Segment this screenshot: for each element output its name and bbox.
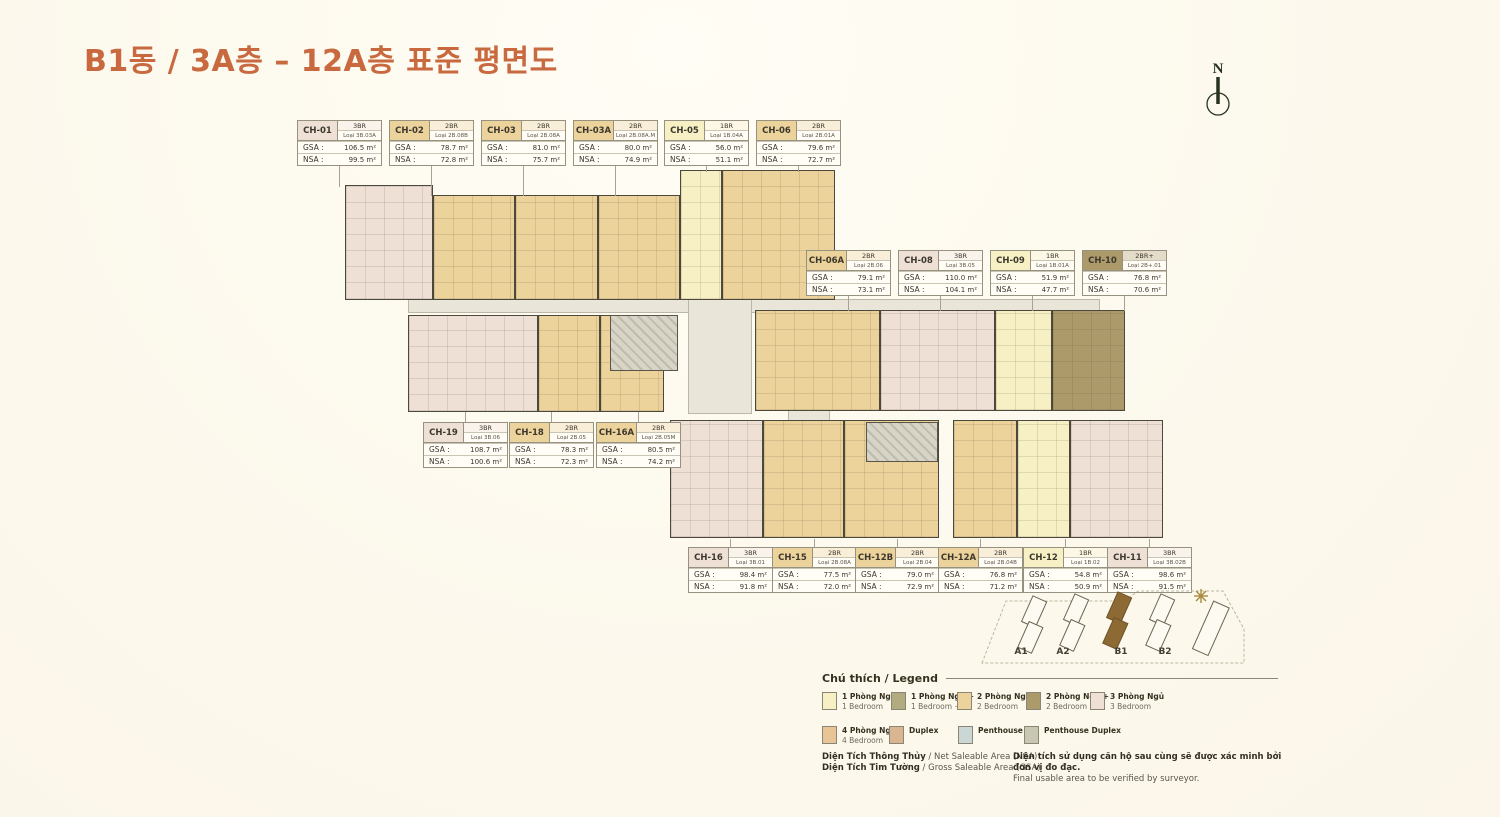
unit-type-code: Loại 2B+.01 — [1123, 261, 1166, 270]
gsa-label: GSA : — [670, 143, 691, 152]
unit-ch-10 — [1052, 310, 1125, 411]
gsa-label: GSA : — [1113, 570, 1134, 579]
nsa-value: 99.5 m² — [349, 156, 376, 164]
unit-header: CH-16 3BR Loại 3B.01 — [689, 548, 772, 568]
legend-label-vi: 2 Phòng Ngủ — [977, 692, 1031, 702]
gsa-label: GSA : — [996, 273, 1017, 282]
leader-line-ch-03 — [523, 164, 524, 196]
nsa-value: 72.3 m² — [561, 458, 588, 466]
nsa-label: NSA : — [670, 155, 691, 164]
unit-nsa-row: NSA : 99.5 m² — [298, 153, 381, 165]
unit-ch-05 — [680, 170, 722, 300]
unit-info-ch-03: CH-03 2BR Loại 2B.08A GSA : 81.0 m² NSA … — [481, 120, 566, 166]
leader-line-ch-16a — [638, 412, 639, 422]
legend-swatch — [889, 726, 904, 744]
building-a2 — [1053, 594, 1095, 651]
unit-gsa-row: GSA : 80.5 m² — [597, 443, 680, 455]
unit-bedrooms: 2BR — [637, 423, 680, 433]
nsa-label: NSA : — [429, 457, 450, 466]
legend-label-vi: Penthouse Duplex — [1044, 726, 1121, 736]
leader-line-ch-09 — [1032, 294, 1033, 311]
unit-id: CH-09 — [991, 251, 1031, 270]
unit-id: CH-11 — [1108, 548, 1148, 567]
unit-header: CH-16A 2BR Loại 2B.05M — [597, 423, 680, 443]
nsa-value: 74.2 m² — [648, 458, 675, 466]
disclaimer-vi: Diện tích sử dụng căn hộ sau cùng sẽ đượ… — [1013, 752, 1281, 773]
unit-bedrooms: 3BR — [464, 423, 507, 433]
unit-ch-03 — [515, 195, 598, 300]
unit-id: CH-12A — [939, 548, 979, 567]
nsa-value: 72.9 m² — [907, 583, 934, 591]
unit-id: CH-18 — [510, 423, 550, 442]
unit-bedrooms: 1BR — [705, 121, 748, 131]
disclaimer-en: Final usable area to be verified by surv… — [1013, 774, 1292, 785]
unit-gsa-row: GSA : 80.0 m² — [574, 141, 657, 153]
legend-heading: Chú thích / Legend — [822, 672, 1278, 685]
unit-type-code: Loại 3B.02B — [1148, 558, 1191, 567]
compass-rose-icon — [1194, 589, 1208, 603]
leader-line-ch-01 — [339, 164, 340, 187]
unit-ch-11 — [1070, 420, 1163, 538]
gsa-label: GSA : — [395, 143, 416, 152]
unit-type-code: Loại 2B.08A — [813, 558, 856, 567]
gsa-value: 80.0 m² — [625, 144, 652, 152]
leader-line-ch-18 — [551, 412, 552, 422]
gsa-value: 51.9 m² — [1042, 274, 1069, 282]
unit-id: CH-19 — [424, 423, 464, 442]
north-compass: N — [1196, 58, 1240, 120]
unit-nsa-row: NSA : 72.0 m² — [773, 580, 856, 592]
gsa-label: GSA : — [778, 570, 799, 579]
legend-swatch — [822, 692, 837, 710]
unit-gsa-row: GSA : 98.6 m² — [1108, 568, 1191, 580]
gsa-value: 78.7 m² — [441, 144, 468, 152]
unit-header: CH-02 2BR Loại 2B.08B — [390, 121, 473, 141]
legend-item-duplex: Duplex — [889, 726, 938, 744]
unit-ch-15 — [763, 420, 844, 538]
unit-ch-12 — [1017, 420, 1070, 538]
site-minimap: A1 A2 B1 B2 — [975, 585, 1253, 673]
unit-info-ch-15: CH-15 2BR Loại 2B.08A GSA : 77.5 m² NSA … — [772, 547, 857, 593]
gsa-label: GSA : — [1029, 570, 1050, 579]
legend-label-en: 3 Bedroom — [1110, 702, 1164, 712]
unit-bedrooms: 2BR — [797, 121, 840, 131]
unit-info-ch-18: CH-18 2BR Loại 2B.05 GSA : 78.3 m² NSA :… — [509, 422, 594, 468]
legend-item-1br: 1 Phòng Ngủ 1 Bedroom — [822, 692, 896, 712]
unit-nsa-row: NSA : 73.1 m² — [807, 283, 890, 295]
unit-info-ch-16a: CH-16A 2BR Loại 2B.05M GSA : 80.5 m² NSA… — [596, 422, 681, 468]
nsa-value: 91.8 m² — [740, 583, 767, 591]
legend-label-vi: 3 Phòng Ngủ — [1110, 692, 1164, 702]
unit-id: CH-02 — [390, 121, 430, 140]
corridor-block — [688, 296, 752, 414]
unit-bedrooms: 3BR — [338, 121, 381, 131]
legend-item-penthouse-duplex: Penthouse Duplex — [1024, 726, 1121, 744]
unit-type-code: Loại 2B.04B — [979, 558, 1022, 567]
north-label: N — [1213, 61, 1224, 77]
stair-core — [866, 422, 938, 462]
unit-nsa-row: NSA : 75.7 m² — [482, 153, 565, 165]
unit-bedrooms: 2BR — [847, 251, 890, 261]
unit-header: CH-12B 2BR Loại 2B.04 — [856, 548, 939, 568]
building-unlabeled — [1193, 601, 1230, 655]
nsa-label: NSA : — [812, 285, 833, 294]
leader-line-ch-11 — [1149, 539, 1150, 547]
gsa-value: 81.0 m² — [533, 144, 560, 152]
unit-bedrooms: 3BR — [939, 251, 982, 261]
unit-header: CH-08 3BR Loại 3B.05 — [899, 251, 982, 271]
unit-info-ch-10: CH-10 2BR+ Loại 2B+.01 GSA : 76.8 m² NSA… — [1082, 250, 1167, 296]
gsa-value: 77.5 m² — [824, 571, 851, 579]
unit-type-code: Loại 3B.05 — [939, 261, 982, 270]
nsa-value: 51.1 m² — [716, 156, 743, 164]
gsa-value: 79.1 m² — [858, 274, 885, 282]
unit-nsa-row: NSA : 104.1 m² — [899, 283, 982, 295]
unit-id: CH-08 — [899, 251, 939, 270]
leader-line-ch-02 — [431, 164, 432, 196]
building-a1 — [1011, 596, 1053, 653]
nsa-value: 72.8 m² — [441, 156, 468, 164]
unit-id: CH-06 — [757, 121, 797, 140]
unit-info-ch-01: CH-01 3BR Loại 3B.03A GSA : 106.5 m² NSA… — [297, 120, 382, 166]
legend-item-penthouse: Penthouse — [958, 726, 1023, 744]
legend-label-vi: 1 Phòng Ngủ — [842, 692, 896, 702]
nsa-value: 70.6 m² — [1134, 286, 1161, 294]
unit-bedrooms: 2BR — [430, 121, 473, 131]
unit-bedrooms: 2BR+ — [1123, 251, 1166, 261]
unit-type-code: Loại 2B.08A — [522, 131, 565, 140]
unit-type-code: Loại 2B.08A.M — [614, 131, 657, 140]
unit-nsa-row: NSA : 74.2 m² — [597, 455, 680, 467]
unit-type-code: Loại 2B.05 — [550, 433, 593, 442]
unit-type-code: Loại 2B.05M — [637, 433, 680, 442]
unit-gsa-row: GSA : 110.0 m² — [899, 271, 982, 283]
unit-nsa-row: NSA : 72.3 m² — [510, 455, 593, 467]
unit-bedrooms: 2BR — [896, 548, 939, 558]
minimap-label-b2: B2 — [1158, 647, 1171, 657]
unit-info-ch-08: CH-08 3BR Loại 3B.05 GSA : 110.0 m² NSA … — [898, 250, 983, 296]
gsa-value: 98.4 m² — [740, 571, 767, 579]
leader-line-ch-03a — [615, 164, 616, 196]
unit-id: CH-12B — [856, 548, 896, 567]
unit-header: CH-03 2BR Loại 2B.08A — [482, 121, 565, 141]
unit-bedrooms: 2BR — [813, 548, 856, 558]
unit-gsa-row: GSA : 78.3 m² — [510, 443, 593, 455]
unit-ch-16 — [670, 420, 763, 538]
unit-id: CH-12 — [1024, 548, 1064, 567]
nsa-label: NSA : — [579, 155, 600, 164]
nsa-value: 47.7 m² — [1042, 286, 1069, 294]
nsa-label: NSA : — [904, 285, 925, 294]
unit-nsa-row: NSA : 51.1 m² — [665, 153, 748, 165]
nsa-label: NSA : — [762, 155, 783, 164]
gsa-label: GSA : — [861, 570, 882, 579]
unit-bedrooms: 2BR — [979, 548, 1022, 558]
nsa-label: NSA : — [694, 582, 715, 591]
unit-ch-08 — [880, 310, 995, 411]
legend-label-en: 2 Bedroom — [977, 702, 1031, 712]
leader-line-ch-10 — [1124, 294, 1125, 311]
page-title: B1동 / 3A층 – 12A층 표준 평면도 — [84, 36, 558, 80]
nsa-label: NSA : — [778, 582, 799, 591]
unit-gsa-row: GSA : 51.9 m² — [991, 271, 1074, 283]
unit-id: CH-06A — [807, 251, 847, 270]
gsa-value: 76.8 m² — [990, 571, 1017, 579]
legend-swatch — [1024, 726, 1039, 744]
gsa-label: GSA : — [1088, 273, 1109, 282]
unit-bedrooms: 1BR — [1031, 251, 1074, 261]
unit-type-code: Loại 2B.08B — [430, 131, 473, 140]
unit-ch-18 — [538, 315, 600, 412]
unit-info-ch-02: CH-02 2BR Loại 2B.08B GSA : 78.7 m² NSA … — [389, 120, 474, 166]
unit-gsa-row: GSA : 78.7 m² — [390, 141, 473, 153]
gsa-label: GSA : — [694, 570, 715, 579]
gsa-value: 98.6 m² — [1159, 571, 1186, 579]
unit-header: CH-05 1BR Loại 1B.04A — [665, 121, 748, 141]
unit-nsa-row: NSA : 72.7 m² — [757, 153, 840, 165]
gsa-label: GSA : — [904, 273, 925, 282]
gsa-value: 106.5 m² — [344, 144, 376, 152]
unit-type-code: Loại 2B.01A — [797, 131, 840, 140]
legend-label-en: 4 Bedroom — [842, 736, 896, 746]
unit-header: CH-12A 2BR Loại 2B.04B — [939, 548, 1022, 568]
unit-type-code: Loại 1B.01A — [1031, 261, 1074, 270]
unit-header: CH-19 3BR Loại 3B.06 — [424, 423, 507, 443]
unit-gsa-row: GSA : 77.5 m² — [773, 568, 856, 580]
nsa-label: NSA : — [1088, 285, 1109, 294]
gsa-label: GSA : — [762, 143, 783, 152]
unit-nsa-row: NSA : 91.8 m² — [689, 580, 772, 592]
unit-header: CH-12 1BR Loại 1B.02 — [1024, 548, 1107, 568]
unit-gsa-row: GSA : 76.8 m² — [1083, 271, 1166, 283]
unit-nsa-row: NSA : 72.9 m² — [856, 580, 939, 592]
leader-line-ch-12a — [980, 539, 981, 547]
legend-swatch — [958, 726, 973, 744]
unit-nsa-row: NSA : 47.7 m² — [991, 283, 1074, 295]
gsa-value: 76.8 m² — [1134, 274, 1161, 282]
unit-nsa-row: NSA : 100.6 m² — [424, 455, 507, 467]
unit-type-code: Loại 1B.02 — [1064, 558, 1107, 567]
nsa-label: NSA : — [395, 155, 416, 164]
unit-header: CH-11 3BR Loại 3B.02B — [1108, 548, 1191, 568]
unit-gsa-row: GSA : 56.0 m² — [665, 141, 748, 153]
unit-bedrooms: 2BR — [614, 121, 657, 131]
nsa-value: 74.9 m² — [625, 156, 652, 164]
unit-ch-09 — [995, 310, 1052, 411]
unit-bedrooms: 1BR — [1064, 548, 1107, 558]
leader-line-ch-08 — [940, 294, 941, 311]
legend-title: Chú thích / Legend — [822, 672, 938, 685]
nsa-label: NSA : — [487, 155, 508, 164]
unit-header: CH-06 2BR Loại 2B.01A — [757, 121, 840, 141]
unit-id: CH-03 — [482, 121, 522, 140]
legend-swatch — [957, 692, 972, 710]
gsa-value: 54.8 m² — [1075, 571, 1102, 579]
gsa-label: GSA : — [579, 143, 600, 152]
unit-gsa-row: GSA : 98.4 m² — [689, 568, 772, 580]
unit-ch-03a — [598, 195, 680, 300]
unit-ch-19 — [408, 315, 538, 412]
unit-info-ch-09: CH-09 1BR Loại 1B.01A GSA : 51.9 m² NSA … — [990, 250, 1075, 296]
unit-type-code: Loại 3B.06 — [464, 433, 507, 442]
unit-nsa-row: NSA : 70.6 m² — [1083, 283, 1166, 295]
unit-header: CH-01 3BR Loại 3B.03A — [298, 121, 381, 141]
unit-id: CH-01 — [298, 121, 338, 140]
area-definitions: Diện Tích Thông Thủy / Net Saleable Area… — [822, 752, 1041, 774]
unit-id: CH-15 — [773, 548, 813, 567]
gsa-label: GSA : — [303, 143, 324, 152]
leader-line-ch-12 — [1065, 539, 1066, 547]
unit-info-ch-16: CH-16 3BR Loại 3B.01 GSA : 98.4 m² NSA :… — [688, 547, 773, 593]
unit-info-ch-06: CH-06 2BR Loại 2B.01A GSA : 79.6 m² NSA … — [756, 120, 841, 166]
minimap-label-a2: A2 — [1056, 647, 1069, 657]
legend-rule — [946, 678, 1278, 679]
legend-label-vi: Penthouse — [978, 726, 1023, 736]
unit-type-code: Loại 2B.06 — [847, 261, 890, 270]
nsa-value: 72.7 m² — [808, 156, 835, 164]
legend-label-en: 1 Bedroom — [842, 702, 896, 712]
leader-line-ch-12b — [897, 539, 898, 547]
unit-gsa-row: GSA : 79.6 m² — [757, 141, 840, 153]
unit-gsa-row: GSA : 108.7 m² — [424, 443, 507, 455]
nsa-value: 73.1 m² — [858, 286, 885, 294]
legend-item-2br: 2 Phòng Ngủ 2 Bedroom — [957, 692, 1031, 712]
nsa-value: 100.6 m² — [470, 458, 502, 466]
gsa-term: Diện Tích Tim Tường — [822, 763, 920, 773]
unit-bedrooms: 3BR — [1148, 548, 1191, 558]
minimap-label-b1: B1 — [1114, 647, 1127, 657]
nsa-label: NSA : — [303, 155, 324, 164]
unit-header: CH-15 2BR Loại 2B.08A — [773, 548, 856, 568]
leader-line-ch-06a — [848, 294, 849, 311]
leader-line-ch-16 — [730, 539, 731, 547]
unit-type-code: Loại 2B.04 — [896, 558, 939, 567]
nsa-term: Diện Tích Thông Thủy — [822, 752, 926, 762]
nsa-label: NSA : — [602, 457, 623, 466]
gsa-label: GSA : — [944, 570, 965, 579]
legend-swatch — [891, 692, 906, 710]
legend-swatch — [1090, 692, 1105, 710]
nsa-label: NSA : — [944, 582, 965, 591]
unit-bedrooms: 2BR — [522, 121, 565, 131]
unit-type-code: Loại 3B.03A — [338, 131, 381, 140]
nsa-label: NSA : — [996, 285, 1017, 294]
unit-header: CH-09 1BR Loại 1B.01A — [991, 251, 1074, 271]
gsa-value: 79.0 m² — [907, 571, 934, 579]
gsa-value: 80.5 m² — [648, 446, 675, 454]
gsa-value: 79.6 m² — [808, 144, 835, 152]
unit-ch-01 — [345, 185, 433, 300]
leader-line-ch-15 — [814, 539, 815, 547]
unit-header: CH-06A 2BR Loại 2B.06 — [807, 251, 890, 271]
unit-info-ch-19: CH-19 3BR Loại 3B.06 GSA : 108.7 m² NSA … — [423, 422, 508, 468]
unit-ch-06a — [755, 310, 880, 411]
unit-id: CH-10 — [1083, 251, 1123, 270]
gsa-value: 56.0 m² — [716, 144, 743, 152]
unit-id: CH-16A — [597, 423, 637, 442]
unit-gsa-row: GSA : 81.0 m² — [482, 141, 565, 153]
elevator-core — [610, 315, 678, 371]
unit-ch-02 — [433, 195, 515, 300]
nsa-value: 104.1 m² — [945, 286, 977, 294]
minimap-label-a1: A1 — [1014, 647, 1027, 657]
legend-swatch — [1026, 692, 1041, 710]
unit-info-ch-05: CH-05 1BR Loại 1B.04A GSA : 56.0 m² NSA … — [664, 120, 749, 166]
gsa-label: GSA : — [487, 143, 508, 152]
page: B1동 / 3A층 – 12A층 표준 평면도 N CH-01 3BR Loại… — [0, 0, 1500, 817]
nsa-label: NSA : — [861, 582, 882, 591]
unit-header: CH-10 2BR+ Loại 2B+.01 — [1083, 251, 1166, 271]
gsa-label: GSA : — [812, 273, 833, 282]
unit-info-ch-12b: CH-12B 2BR Loại 2B.04 GSA : 79.0 m² NSA … — [855, 547, 940, 593]
unit-info-ch-03a: CH-03A 2BR Loại 2B.08A.M GSA : 80.0 m² N… — [573, 120, 658, 166]
nsa-value: 75.7 m² — [533, 156, 560, 164]
unit-id: CH-03A — [574, 121, 614, 140]
unit-type-code: Loại 1B.04A — [705, 131, 748, 140]
nsa-label: NSA : — [515, 457, 536, 466]
unit-gsa-row: GSA : 106.5 m² — [298, 141, 381, 153]
unit-info-ch-06a: CH-06A 2BR Loại 2B.06 GSA : 79.1 m² NSA … — [806, 250, 891, 296]
gsa-label: GSA : — [429, 445, 450, 454]
legend-label-vi: 4 Phòng Ngủ — [842, 726, 896, 736]
gsa-label: GSA : — [602, 445, 623, 454]
unit-type-code: Loại 3B.01 — [729, 558, 772, 567]
leader-line-ch-19 — [465, 412, 466, 422]
legend-swatch — [822, 726, 837, 744]
unit-header: CH-18 2BR Loại 2B.05 — [510, 423, 593, 443]
unit-gsa-row: GSA : 79.1 m² — [807, 271, 890, 283]
legend-item-4br: 4 Phòng Ngủ 4 Bedroom — [822, 726, 896, 746]
nsa-value: 72.0 m² — [824, 583, 851, 591]
unit-bedrooms: 2BR — [550, 423, 593, 433]
disclaimer: Diện tích sử dụng căn hộ sau cùng sẽ đượ… — [1013, 752, 1292, 785]
gsa-value: 78.3 m² — [561, 446, 588, 454]
building-b1-highlighted — [1096, 592, 1138, 649]
legend-item-3br: 3 Phòng Ngủ 3 Bedroom — [1090, 692, 1164, 712]
unit-id: CH-05 — [665, 121, 705, 140]
unit-ch-12a — [953, 420, 1017, 538]
gsa-value: 108.7 m² — [470, 446, 502, 454]
unit-nsa-row: NSA : 72.8 m² — [390, 153, 473, 165]
unit-gsa-row: GSA : 79.0 m² — [856, 568, 939, 580]
unit-nsa-row: NSA : 74.9 m² — [574, 153, 657, 165]
unit-id: CH-16 — [689, 548, 729, 567]
gsa-value: 110.0 m² — [945, 274, 977, 282]
unit-header: CH-03A 2BR Loại 2B.08A.M — [574, 121, 657, 141]
legend-label-vi: Duplex — [909, 726, 938, 736]
unit-gsa-row: GSA : 54.8 m² — [1024, 568, 1107, 580]
unit-bedrooms: 3BR — [729, 548, 772, 558]
unit-gsa-row: GSA : 76.8 m² — [939, 568, 1022, 580]
gsa-label: GSA : — [515, 445, 536, 454]
building-b2 — [1139, 594, 1181, 651]
